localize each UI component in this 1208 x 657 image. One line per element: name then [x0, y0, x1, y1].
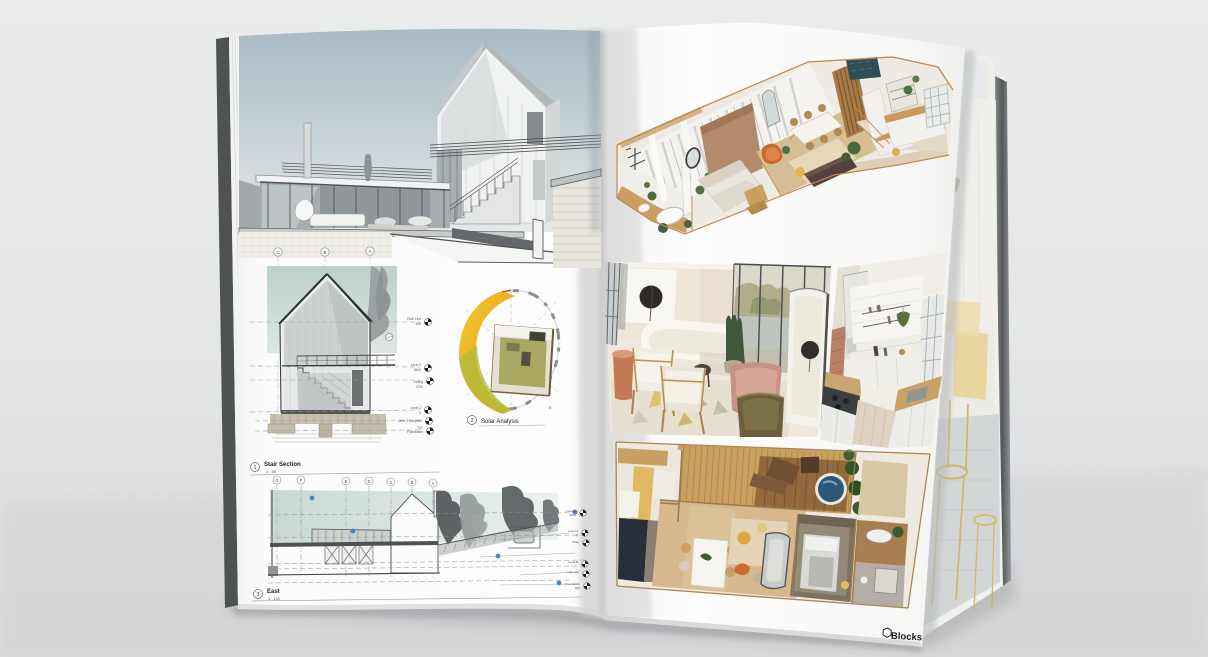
svg-text:F: F — [300, 478, 303, 483]
svg-text:900: 900 — [416, 322, 422, 326]
svg-text:D: D — [367, 479, 370, 484]
svg-text:Solar Analysis: Solar Analysis — [481, 419, 519, 425]
svg-text:3600: 3600 — [569, 513, 576, 517]
svg-text:1: 1 — [254, 465, 257, 471]
svg-text:G: G — [275, 478, 278, 483]
svg-text:3: 3 — [257, 592, 260, 598]
svg-text:Ceiling: Ceiling — [413, 380, 423, 384]
svg-text:2700: 2700 — [416, 385, 423, 389]
svg-text:Level B: Level B — [568, 560, 578, 564]
svg-text:E: E — [345, 479, 348, 484]
svg-text:Level 1: Level 1 — [411, 406, 422, 410]
svg-text:600: 600 — [575, 586, 580, 590]
svg-text:Stair Section: Stair Section — [264, 462, 301, 468]
svg-text:2: 2 — [471, 418, 474, 424]
svg-text:B: B — [323, 250, 326, 255]
svg-text:Roof Line: Roof Line — [407, 317, 421, 321]
svg-text:3600: 3600 — [414, 368, 421, 372]
svg-text:East: East — [267, 589, 280, 595]
svg-text:Patio: Patio — [572, 540, 579, 544]
svg-text:A: A — [432, 481, 435, 486]
svg-text:B: B — [411, 480, 414, 485]
svg-text:A: A — [368, 249, 371, 254]
svg-text:0: 0 — [419, 411, 421, 415]
svg-text:1 : 100: 1 : 100 — [268, 596, 281, 601]
svg-text:Level 2: Level 2 — [411, 363, 422, 367]
svg-text:C: C — [389, 480, 392, 485]
svg-text:E: E — [549, 405, 552, 410]
svg-text:1 : 50: 1 : 50 — [266, 469, 277, 474]
svg-text:Level 1 complete: Level 1 complete — [398, 419, 422, 423]
svg-text:Foundation: Foundation — [407, 430, 423, 434]
